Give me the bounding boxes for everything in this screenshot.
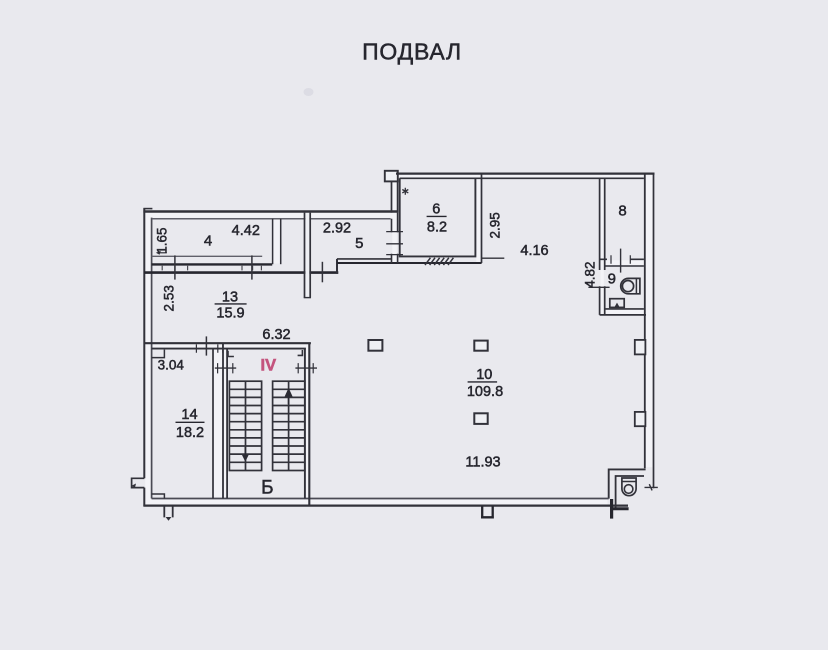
svg-text:4.42: 4.42 [232, 223, 260, 239]
svg-text:14: 14 [181, 407, 197, 423]
svg-text:13: 13 [222, 290, 238, 306]
svg-text:Б: Б [261, 478, 273, 499]
svg-text:11.93: 11.93 [465, 454, 500, 470]
svg-text:IV: IV [261, 357, 277, 375]
svg-text:3.04: 3.04 [158, 357, 185, 372]
svg-text:8.2: 8.2 [427, 220, 447, 236]
svg-text:6.32: 6.32 [262, 327, 290, 343]
svg-text:4.82: 4.82 [582, 261, 597, 287]
svg-text:1.65: 1.65 [155, 227, 170, 253]
svg-text:10: 10 [476, 367, 492, 383]
svg-text:2.53: 2.53 [161, 285, 176, 311]
svg-text:4.16: 4.16 [520, 243, 548, 259]
svg-text:2.95: 2.95 [487, 212, 502, 238]
svg-text:6: 6 [432, 201, 440, 217]
svg-text:4: 4 [204, 233, 212, 250]
svg-text:18.2: 18.2 [176, 425, 204, 441]
svg-text:9: 9 [608, 271, 616, 288]
svg-text:109.8: 109.8 [467, 384, 503, 400]
svg-text:15.9: 15.9 [216, 306, 244, 322]
svg-text:2.92: 2.92 [323, 221, 351, 237]
svg-text:ПОДВАЛ: ПОДВАЛ [362, 39, 462, 65]
svg-text:5: 5 [355, 235, 363, 252]
svg-text:8: 8 [618, 203, 626, 220]
